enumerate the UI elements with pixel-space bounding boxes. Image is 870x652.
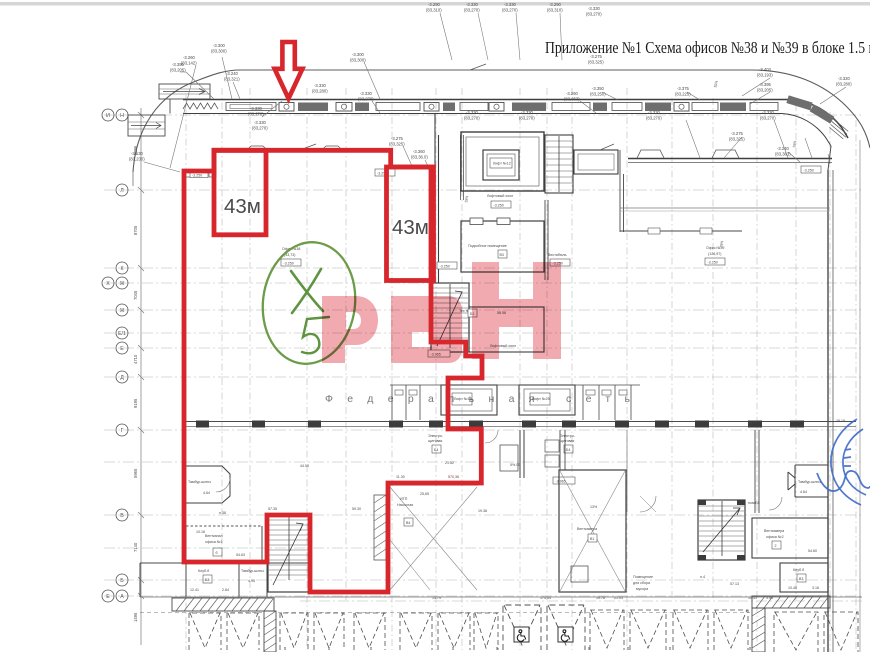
svg-text:Помещение: Помещение [633,575,653,579]
svg-text:-3.330: -3.330 [360,91,373,96]
svg-text:Г: Г [121,428,124,434]
svg-text:57.35: 57.35 [268,507,277,511]
svg-text:11.30: 11.30 [396,475,405,479]
svg-text:-3.240: -3.240 [777,146,790,151]
svg-text:-3.240: -3.240 [226,71,239,76]
svg-text:(83,270): (83,270) [519,116,535,121]
svg-text:-3.330: -3.330 [588,6,601,11]
svg-text:-3.275: -3.275 [391,136,404,141]
svg-text:-3.250: -3.250 [708,260,718,264]
svg-text:-3.250: -3.250 [804,168,814,172]
svg-text:Лифтовый холл: Лифтовый холл [487,194,513,198]
svg-text:-3.290: -3.290 [428,2,441,7]
svg-text:пом В5: пом В5 [748,501,760,505]
svg-text:(83,280): (83,280) [312,89,328,94]
svg-text:Венткамера: Венткамера [764,529,784,533]
svg-text:-3.130: -3.130 [131,151,144,156]
svg-text:9195: 9195 [133,398,138,408]
svg-text:-3.330: -3.330 [521,110,534,115]
svg-text:(83,205): (83,205) [757,88,773,93]
svg-text:(83,230): (83,230) [129,157,145,162]
svg-text:59.30: 59.30 [352,507,361,511]
svg-text:-3.300: -3.300 [352,52,365,57]
svg-text:Е: Е [106,594,110,600]
svg-text:-3.250: -3.250 [440,264,450,268]
svg-text:12.41: 12.41 [190,588,199,592]
svg-text:10.40: 10.40 [788,586,797,590]
svg-text:Лифт №12: Лифт №12 [493,162,511,166]
svg-text:570,36: 570,36 [448,475,459,479]
svg-text:Тамбур-шлюз: Тамбур-шлюз [188,480,211,484]
svg-text:-3.275: -3.275 [731,131,744,136]
svg-text:(83,270): (83,270) [760,116,776,121]
svg-text:Х: Х [106,281,110,287]
svg-text:-3.260: -3.260 [183,55,196,60]
svg-text:В: В [120,513,124,519]
svg-text:мусора: мусора [636,587,648,591]
svg-text:-3.350: -3.350 [592,86,605,91]
svg-text:-3.330: -3.330 [504,2,517,7]
svg-text:Б4: Б4 [434,448,438,452]
svg-text:В3: В3 [799,577,803,581]
svg-text:8705: 8705 [133,225,138,235]
svg-text:(83,142): (83,142) [181,61,197,66]
svg-text:(83,270): (83,270) [248,112,264,117]
svg-text:-3.375: -3.375 [677,86,690,91]
svg-text:(83,310): (83,310) [547,8,563,13]
svg-text:(83,270): (83,270) [586,12,602,17]
svg-text:Клуб.б: Клуб.б [793,568,804,572]
svg-text:28.18: 28.18 [836,419,845,423]
svg-text:Е: Е [120,346,124,352]
svg-text:-3.250: -3.250 [284,261,294,265]
svg-text:(83,193): (83,193) [757,73,773,78]
svg-text:54.60: 54.60 [808,549,817,553]
svg-text:-3.250: -3.250 [494,203,504,207]
svg-text:И: И [106,113,110,119]
svg-text:щитовая: щитовая [428,439,442,443]
svg-text:Вестибюль: Вестибюль [548,253,567,257]
svg-text:(83,270): (83,270) [252,126,268,131]
svg-text:Ж: Ж [120,308,125,314]
svg-text:Насосная: Насосная [397,503,413,507]
svg-text:(83,363): (83,363) [564,97,580,102]
svg-text:Тамбур-шлюз: Тамбур-шлюз [241,569,264,573]
svg-text:Б3: Б3 [205,578,209,582]
svg-text:(83,225): (83,225) [675,92,691,97]
svg-text:Д: Д [120,375,124,381]
svg-text:4710: 4710 [133,354,138,364]
svg-text:Вентканал: Вентканал [205,534,223,538]
svg-text:п.4: п.4 [700,575,705,579]
svg-text:(83,300): (83,300) [211,49,227,54]
svg-text:(83,321): (83,321) [224,77,240,82]
svg-text:-3.330: -3.330 [466,110,479,115]
svg-text:4.95: 4.95 [248,579,255,583]
svg-text:(83,250): (83,250) [590,92,606,97]
svg-text:(83,270): (83,270) [358,97,374,102]
svg-text:(83,270): (83,270) [502,8,518,13]
svg-text:для сбора: для сбора [633,581,650,585]
svg-text:-3.330: -3.330 [254,120,267,125]
svg-text:-3.330: -3.330 [648,110,661,115]
svg-text:щитовая: щитовая [560,439,574,443]
svg-text:(126,97): (126,97) [708,252,721,256]
svg-text:57.13: 57.13 [730,582,739,586]
svg-text:Лифт №25: Лифт №25 [532,397,550,401]
svg-text:(83,270): (83,270) [464,8,480,13]
svg-text:-3.250: -3.250 [192,173,202,177]
svg-text:5965: 5965 [133,468,138,478]
svg-text:1495: 1495 [133,612,138,622]
svg-text:ИТП: ИТП [400,497,408,501]
svg-text:-3.330: -3.330 [466,2,479,7]
svg-text:-3.330: -3.330 [762,110,775,115]
svg-text:Офис №39: Офис №39 [706,246,724,250]
svg-text:Е/1: Е/1 [118,331,126,337]
svg-text:Ж: Ж [120,281,125,287]
svg-text:(83,310): (83,310) [426,8,442,13]
svg-text:-3.320: -3.320 [838,76,851,81]
svg-text:4.64: 4.64 [800,490,807,494]
svg-text:7140: 7140 [133,542,138,552]
svg-text:2.84: 2.84 [222,588,229,592]
svg-text:В1: В1 [590,537,594,541]
svg-text:44.05: 44.05 [300,464,309,468]
svg-text:-3.965: -3.965 [556,479,566,483]
svg-text:43м: 43м [224,195,261,218]
svg-text:(83,325): (83,325) [389,142,405,147]
svg-text:Н: Н [120,113,124,119]
svg-text:В3: В3 [500,253,504,257]
svg-text:(83,325): (83,325) [729,137,745,142]
svg-text:-3.275: -3.275 [590,54,603,59]
svg-text:Электро-: Электро- [428,434,444,438]
svg-text:Б4: Б4 [566,448,570,452]
svg-text:Тамбур-шлюз: Тамбур-шлюз [798,480,821,484]
svg-text:-3.290: -3.290 [549,2,562,7]
svg-text:(83,363): (83,363) [775,152,791,157]
svg-text:3.16: 3.16 [812,586,819,590]
svg-text:54.63: 54.63 [236,553,245,557]
svg-text:2: 2 [775,544,777,548]
svg-text:Электро-: Электро- [560,434,576,438]
svg-text:(83,280): (83,280) [836,82,852,87]
svg-text:43м: 43м [392,216,429,239]
svg-text:7045: 7045 [133,290,138,300]
svg-text:(83,270): (83,270) [646,116,662,121]
svg-text:-3.330: -3.330 [314,83,327,88]
svg-text:5%.05: 5%.05 [510,463,520,467]
svg-text:-3.403: -3.403 [759,67,772,72]
svg-text:К: К [120,266,123,272]
svg-text:Б: Б [120,578,124,584]
svg-text:В4: В4 [406,521,410,525]
svg-text:10.18: 10.18 [196,530,205,534]
svg-text:б: б [216,551,218,555]
svg-text:21.52: 21.52 [445,461,454,465]
svg-text:Подсобное помещение: Подсобное помещение [468,244,507,248]
svg-text:офиса №2: офиса №2 [766,535,784,539]
svg-text:пв 97: пв 97 [748,421,757,425]
svg-text:(83,270): (83,270) [464,116,480,121]
svg-text:13%: 13% [590,505,598,509]
svg-text:(83,36.0): (83,36.0) [411,155,428,160]
svg-text:-3.300: -3.300 [213,43,226,48]
svg-text:-3.395: -3.395 [759,82,772,87]
svg-text:А: А [120,594,124,600]
svg-text:Клуб.б: Клуб.б [198,569,209,573]
svg-text:-3.330: -3.330 [250,106,263,111]
svg-text:п 38: п 38 [219,511,226,515]
svg-text:Л: Л [120,188,123,194]
svg-text:Венткамера: Венткамера [577,527,597,531]
svg-text:4.64: 4.64 [203,491,210,495]
svg-text:25,65: 25,65 [420,492,429,496]
svg-text:-3.260: -3.260 [566,91,579,96]
svg-text:-3.360: -3.360 [413,149,426,154]
svg-text:(83,300): (83,300) [350,58,366,63]
svg-text:(83,325): (83,325) [588,60,604,65]
svg-text:офиса №1: офиса №1 [205,540,223,544]
svg-text:19.38: 19.38 [478,509,487,513]
